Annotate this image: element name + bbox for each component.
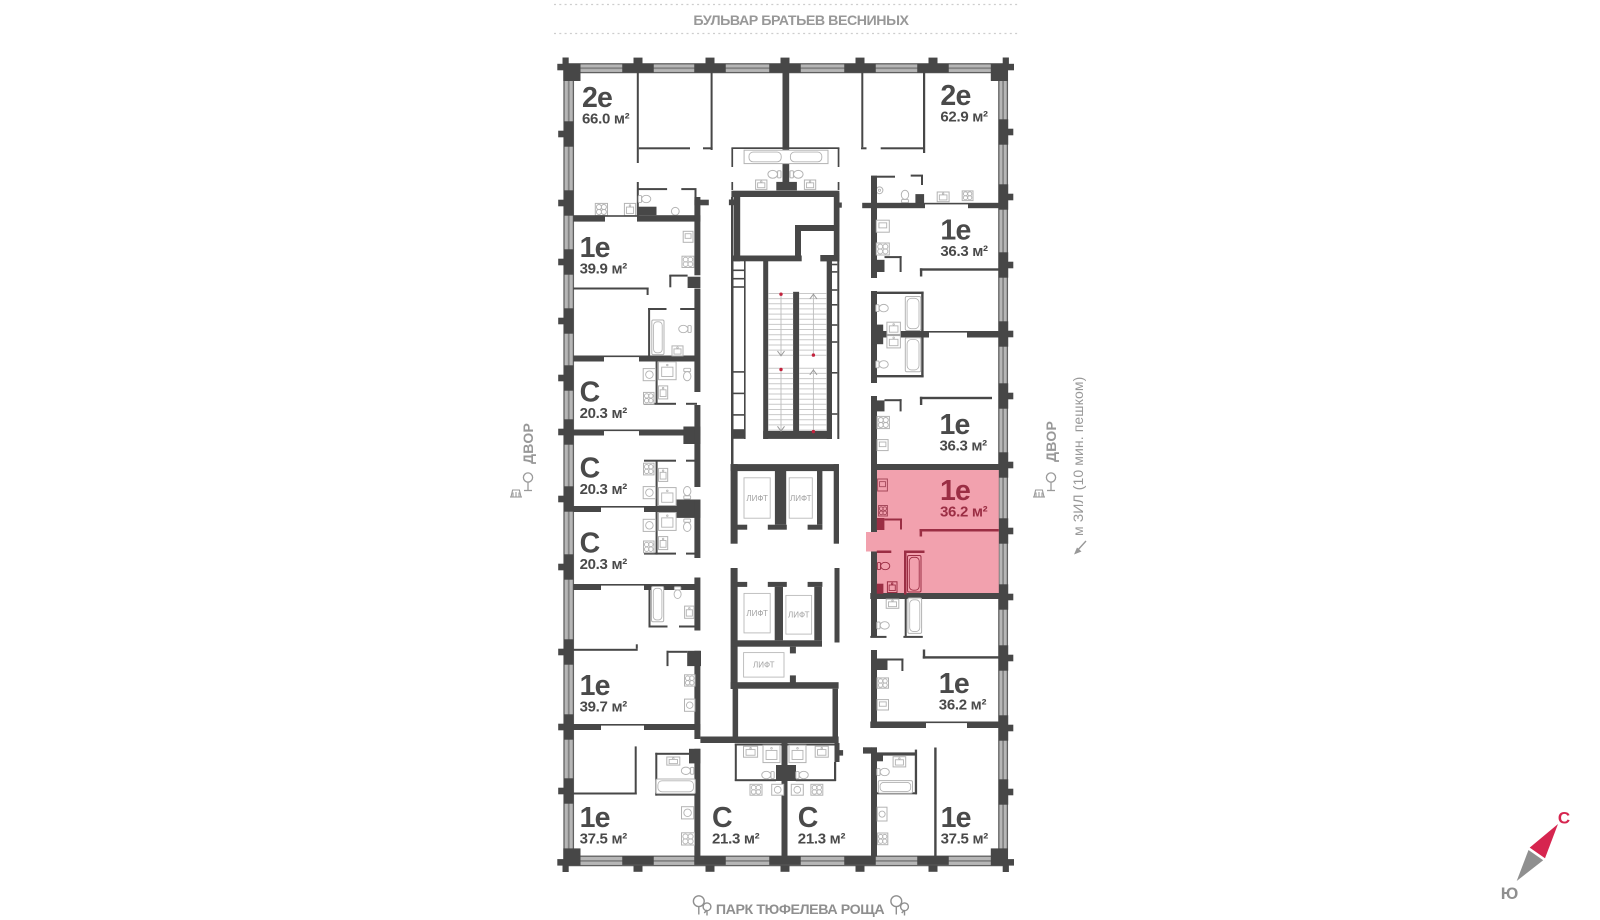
svg-text:2е: 2е — [940, 80, 970, 112]
svg-text:ДВОР: ДВОР — [520, 423, 536, 464]
svg-text:21.3 м²: 21.3 м² — [712, 831, 760, 848]
svg-text:ЛИФТ: ЛИФТ — [746, 494, 768, 503]
svg-text:37.5 м²: 37.5 м² — [941, 831, 989, 848]
svg-text:21.3 м²: 21.3 м² — [798, 831, 846, 848]
svg-text:36.3 м²: 36.3 м² — [940, 438, 988, 455]
svg-text:ЛИФТ: ЛИФТ — [753, 661, 775, 670]
svg-text:2е: 2е — [582, 82, 612, 114]
svg-text:С: С — [798, 802, 818, 834]
svg-text:36.2 м²: 36.2 м² — [940, 504, 988, 521]
svg-text:С: С — [580, 528, 600, 560]
svg-text:62.9 м²: 62.9 м² — [940, 109, 988, 126]
svg-text:20.3 м²: 20.3 м² — [580, 405, 628, 422]
svg-text:39.9 м²: 39.9 м² — [580, 261, 628, 278]
svg-text:С: С — [1558, 809, 1570, 828]
svg-text:БУЛЬВАР БРАТЬЕВ ВЕСНИНЫХ: БУЛЬВАР БРАТЬЕВ ВЕСНИНЫХ — [693, 13, 909, 29]
svg-text:С: С — [580, 376, 600, 408]
svg-text:Ю: Ю — [1501, 884, 1519, 903]
svg-text:20.3 м²: 20.3 м² — [580, 556, 628, 573]
svg-text:66.0 м²: 66.0 м² — [582, 111, 630, 128]
svg-text:1е: 1е — [580, 232, 610, 264]
svg-text:м ЗИЛ (10 мин. пешком): м ЗИЛ (10 мин. пешком) — [1070, 377, 1086, 536]
svg-text:С: С — [712, 802, 732, 834]
svg-text:36.2 м²: 36.2 м² — [939, 697, 987, 714]
svg-text:ЛИФТ: ЛИФТ — [746, 609, 768, 618]
svg-text:1е: 1е — [940, 215, 970, 247]
svg-text:1е: 1е — [580, 802, 610, 834]
svg-text:1е: 1е — [940, 475, 970, 507]
svg-text:1е: 1е — [940, 409, 970, 441]
svg-text:37.5 м²: 37.5 м² — [580, 831, 628, 848]
svg-text:С: С — [580, 453, 600, 485]
svg-text:ЛИФТ: ЛИФТ — [790, 494, 812, 503]
svg-text:39.7 м²: 39.7 м² — [580, 699, 628, 716]
svg-text:36.3 м²: 36.3 м² — [940, 243, 988, 260]
svg-text:ПАРК ТЮФЕЛЕВА РОЩА: ПАРК ТЮФЕЛЕВА РОЩА — [716, 902, 884, 918]
svg-text:ЛИФТ: ЛИФТ — [788, 611, 810, 620]
svg-text:1е: 1е — [939, 668, 969, 700]
svg-text:20.3 м²: 20.3 м² — [580, 481, 628, 498]
svg-text:1е: 1е — [580, 670, 610, 702]
svg-text:1е: 1е — [941, 802, 971, 834]
svg-text:ДВОР: ДВОР — [1043, 421, 1059, 462]
